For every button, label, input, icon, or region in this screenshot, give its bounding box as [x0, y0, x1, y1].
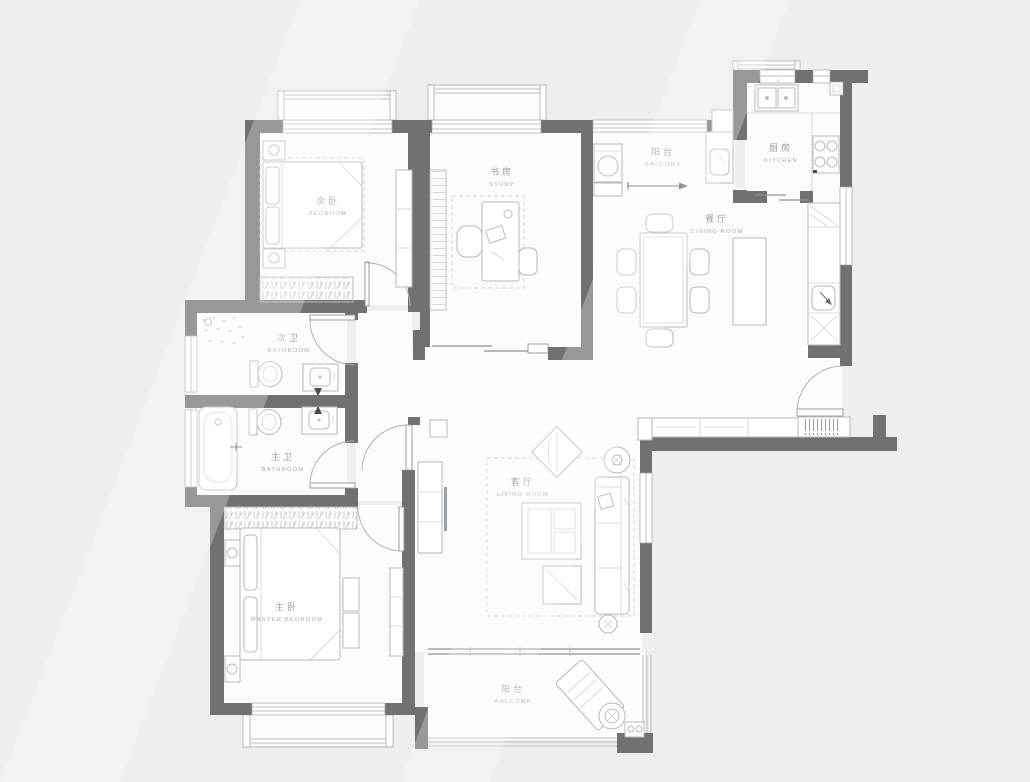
- floor-plan: 次卧 BEDROOM 书房 STUDY 阳台 BALCONY 厨房 KITCHE…: [0, 0, 1030, 782]
- label-dining-cn: 餐厅: [705, 213, 729, 224]
- counter-sink: [812, 286, 835, 310]
- corner-column: [638, 418, 652, 440]
- pillow: [244, 535, 257, 590]
- window-living-right: [640, 473, 652, 543]
- window-master-bedroom-bottom: [252, 703, 385, 715]
- vanity: [303, 364, 338, 391]
- tv-console: [418, 462, 442, 553]
- label-master-bedroom-cn: 主卧: [275, 601, 299, 612]
- bench: [343, 613, 359, 648]
- flue-box: [830, 82, 843, 95]
- label-master-bath-en: BATHROOM: [262, 467, 305, 473]
- pillow: [244, 597, 257, 652]
- hall-closet: [652, 418, 798, 437]
- dining-chair: [690, 287, 709, 313]
- bench: [343, 578, 359, 611]
- window-dining-right: [840, 187, 852, 265]
- label-study-en: STUDY: [489, 182, 515, 188]
- label-kitchen-cn: 厨房: [769, 142, 793, 153]
- wardrobe: [225, 507, 357, 529]
- label-master-bedroom-en: MASTER BEDROOM: [251, 617, 324, 623]
- label-kitchen-en: KITCHEN: [764, 158, 798, 164]
- dining-counter-column: [808, 203, 840, 345]
- island-counter: [733, 238, 766, 325]
- dresser: [390, 568, 403, 656]
- balcony-cabinet: [594, 183, 622, 196]
- desk-chair: [457, 226, 482, 257]
- side-chair: [519, 248, 537, 275]
- label-study-cn: 书房: [490, 166, 514, 177]
- desk: [482, 202, 519, 281]
- dresser: [396, 170, 412, 287]
- label-master-bath-cn: 主卫: [271, 451, 295, 462]
- hall-cabinet: [430, 420, 447, 437]
- window-study-top: [432, 120, 541, 133]
- tv: [444, 487, 447, 531]
- bookshelf: [430, 170, 446, 310]
